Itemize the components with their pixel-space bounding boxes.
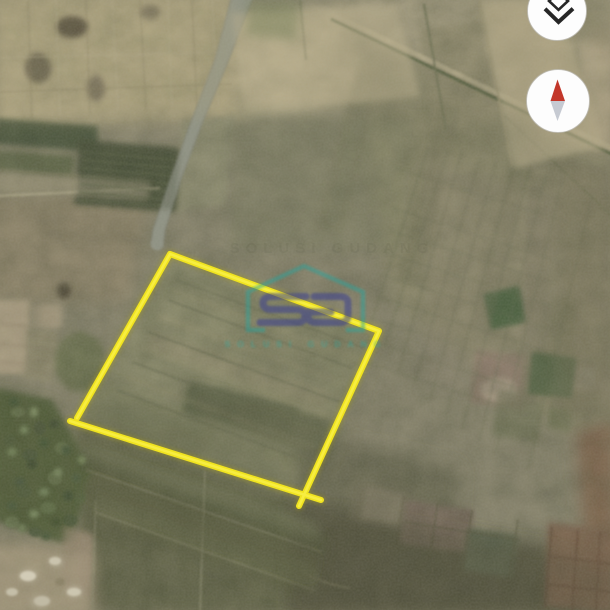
svg-text:SOLUSI GUDANG: SOLUSI GUDANG <box>225 339 388 349</box>
svg-text:SOLUSI GUDANG: SOLUSI GUDANG <box>230 240 435 257</box>
